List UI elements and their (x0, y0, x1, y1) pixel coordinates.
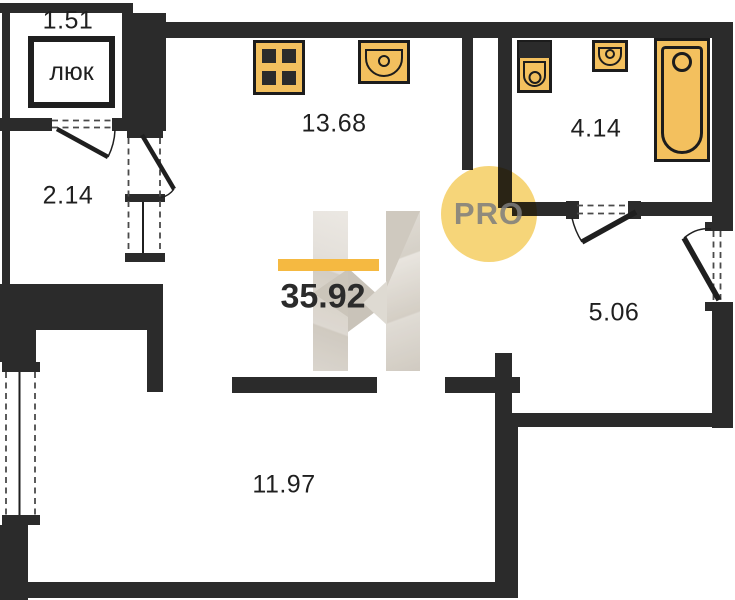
area-label-balcony: 2.14 (43, 182, 94, 211)
area-label-hatch: 1.51 (43, 7, 94, 36)
area-label-room: 11.97 (252, 471, 315, 500)
area-label-kitchen: 13.68 (301, 110, 366, 139)
area-label-bathroom: 4.14 (571, 115, 622, 144)
floorplan: люк (0, 0, 735, 600)
pro-badge-label: PRO (454, 196, 524, 232)
total-area-label: 35.92 (280, 278, 365, 317)
accent-underline (278, 259, 379, 271)
area-label-hallway: 5.06 (589, 299, 640, 328)
